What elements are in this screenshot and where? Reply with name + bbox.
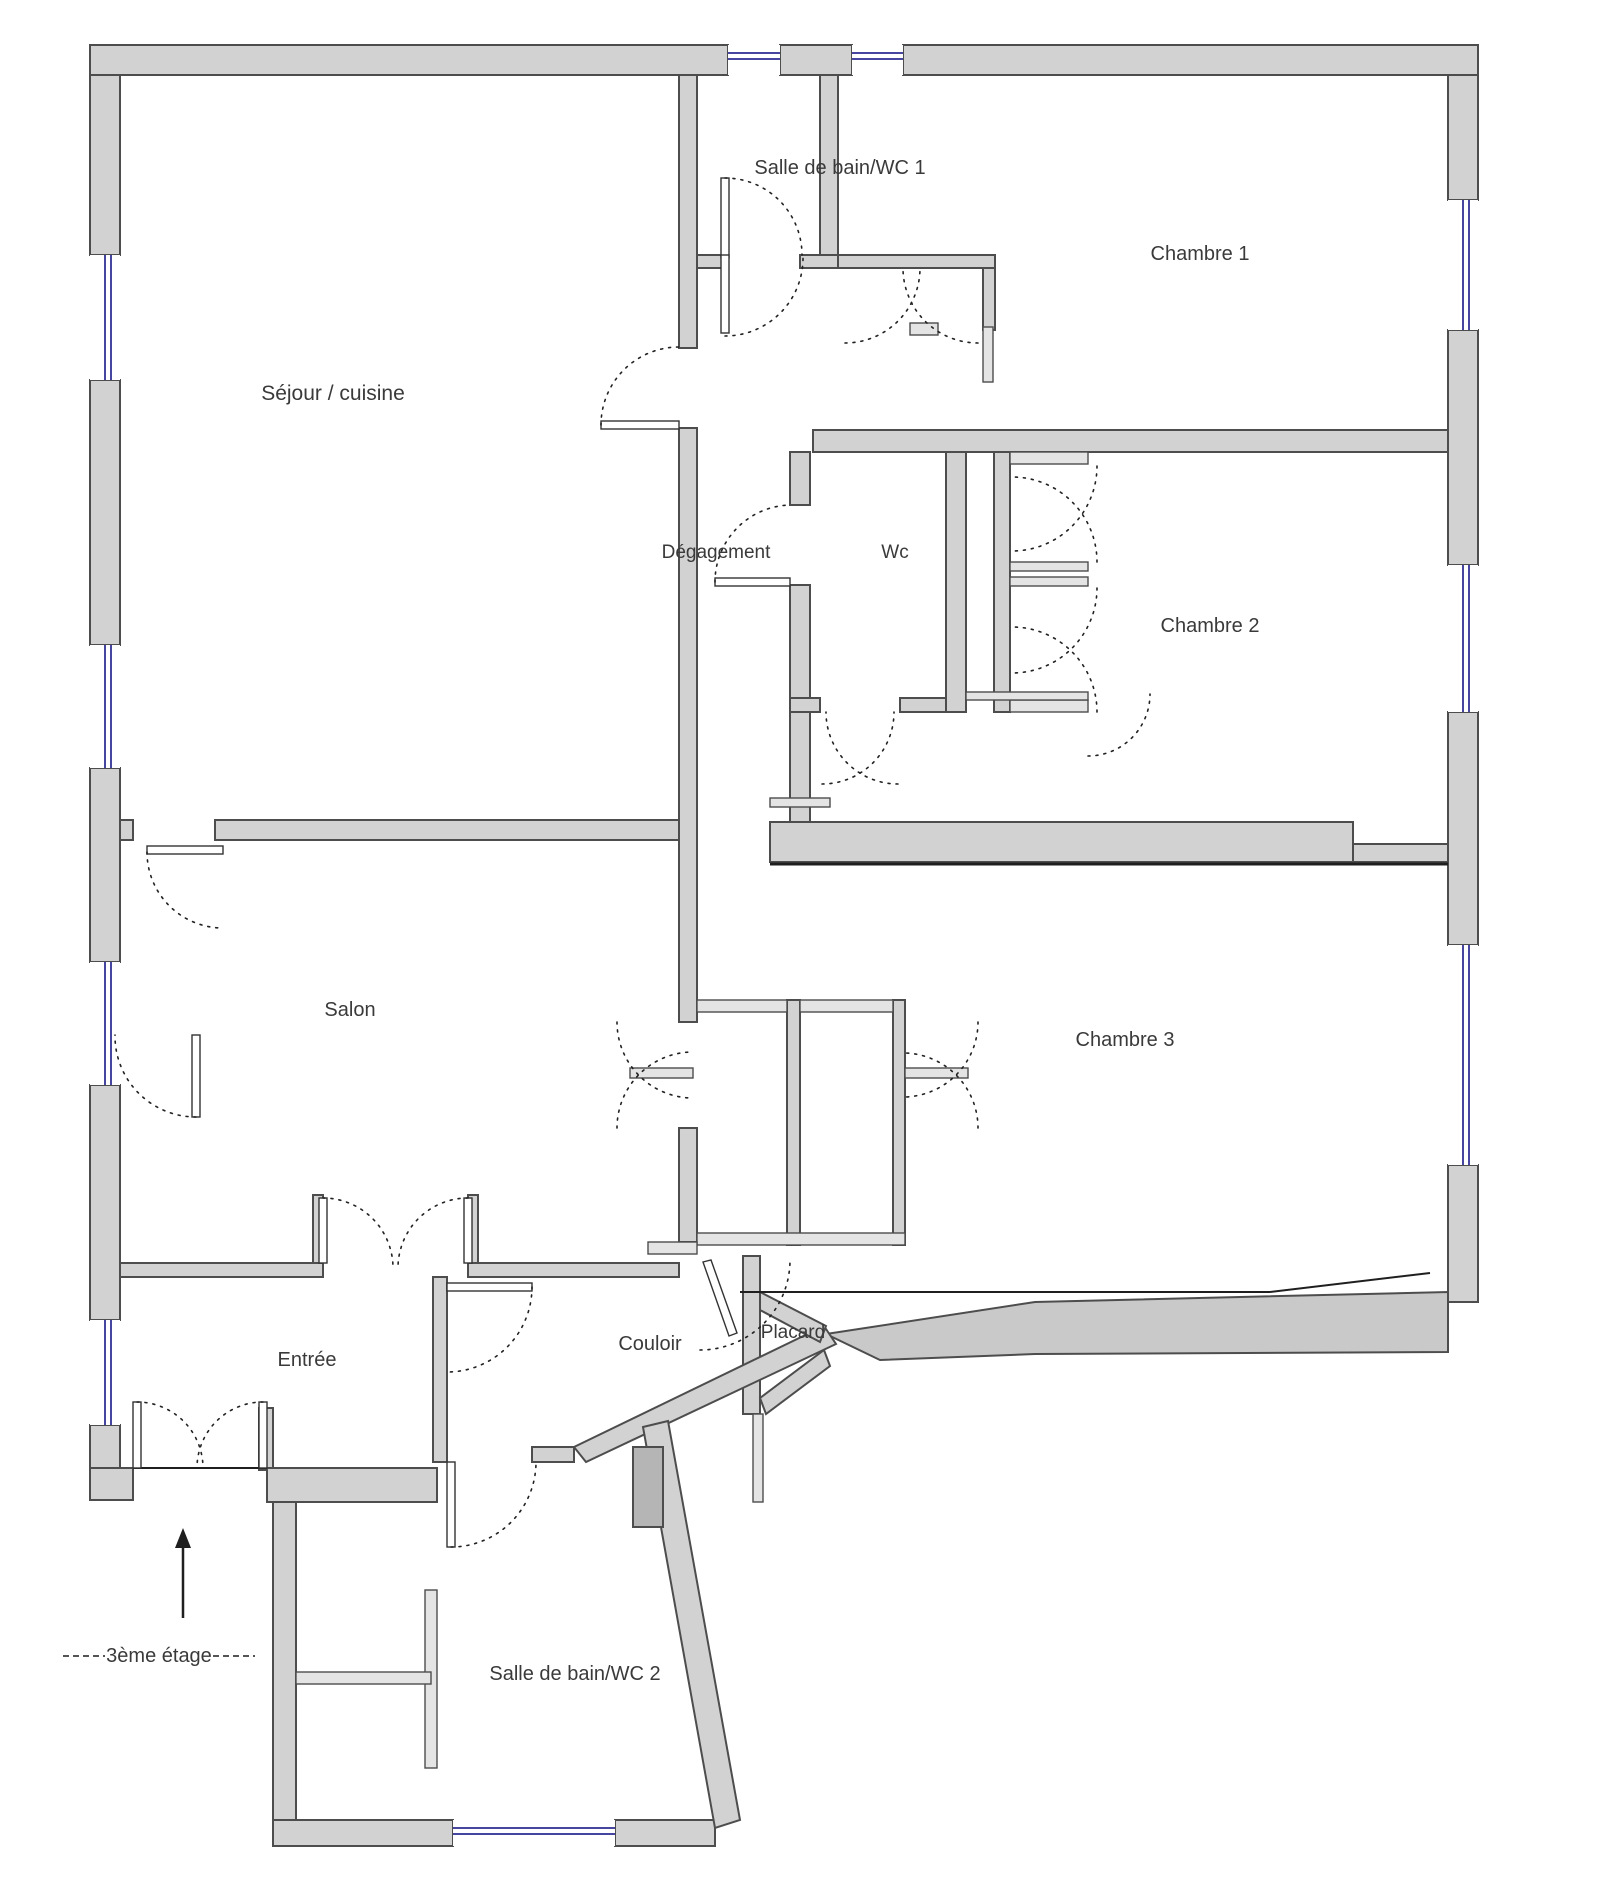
wall (267, 1468, 437, 1502)
wall (90, 1085, 120, 1320)
wall (433, 1277, 447, 1462)
partition-wall (1010, 700, 1088, 712)
partition-wall (296, 1672, 431, 1684)
wall (813, 430, 1448, 452)
wall (790, 452, 810, 505)
wall (994, 452, 1010, 712)
door-leaf (447, 1283, 532, 1291)
wall (743, 1256, 760, 1414)
door-swing-arc (398, 1198, 468, 1268)
wall (90, 768, 120, 962)
door-leaf-placard (703, 1260, 737, 1336)
door-leaf (464, 1198, 472, 1263)
door-swing-arc (323, 1198, 393, 1268)
door-swing-arc (845, 268, 920, 343)
room-label-couloir: Couloir (618, 1333, 682, 1355)
wall (679, 75, 697, 348)
partition-wall (1010, 562, 1088, 571)
room-label-degagement: Dégagement (662, 542, 772, 563)
wall (983, 268, 995, 330)
partition-wall (1010, 577, 1088, 586)
wall (90, 380, 120, 645)
room-label-placard: Placard (761, 1322, 825, 1343)
wall (903, 45, 1478, 75)
door-leaf (715, 578, 790, 586)
partition-wall (983, 327, 993, 382)
wall (679, 428, 697, 1022)
partition-wall (1010, 452, 1088, 464)
wall (770, 822, 1353, 862)
room-label-wc: Wc (881, 542, 908, 563)
wall (215, 820, 679, 840)
door-swing-arc (725, 258, 803, 336)
wall (780, 45, 852, 75)
wall-edge-line (1270, 1273, 1430, 1292)
partition-wall (966, 692, 1088, 700)
partition-wall (697, 1000, 787, 1012)
door-swing-arc (147, 852, 223, 928)
door-swing-arc (822, 712, 894, 784)
stair-arrow-head-icon (175, 1528, 191, 1548)
door-swing-arc (451, 1462, 536, 1547)
door-leaf (447, 1462, 455, 1547)
door-swing-arc (725, 178, 802, 255)
wall (120, 1263, 323, 1277)
door-swing-arc (447, 1287, 532, 1372)
polygons-layer (574, 1292, 1448, 1828)
door-leaf (192, 1035, 200, 1117)
wall (468, 1263, 679, 1277)
door-swing-arc (137, 1402, 203, 1468)
wall (120, 820, 133, 840)
room-label-salon: Salon (324, 999, 375, 1021)
wall (1448, 712, 1478, 945)
door-swing-arc (601, 347, 679, 425)
partition-wall (770, 798, 830, 807)
room-label-chambre-3: Chambre 3 (1076, 1029, 1175, 1051)
door-leaf (147, 846, 223, 854)
door-swing-arc (197, 1402, 263, 1468)
wall (800, 255, 838, 268)
partition-wall (753, 1414, 763, 1502)
wall (273, 1820, 453, 1846)
floor-note-layer: 3ème étage (63, 1528, 255, 1667)
wall (679, 1128, 697, 1242)
wall (790, 698, 820, 712)
wall (946, 452, 966, 712)
door-leaf (319, 1198, 327, 1263)
room-label-salle-de-bain-wc-2: Salle de bain/WC 2 (489, 1663, 660, 1685)
partition-wall (630, 1068, 693, 1078)
walls-layer (90, 45, 1478, 1846)
door-swing-arc (1012, 588, 1097, 673)
floor-plan-page: Séjour / cuisineSalle de bain/WC 1Chambr… (0, 0, 1600, 1886)
door-leaf (259, 1402, 267, 1468)
room-label-chambre-1: Chambre 1 (1151, 243, 1250, 265)
door-leaf (133, 1402, 141, 1468)
door-swing-arc (903, 1022, 978, 1097)
wall (838, 255, 995, 268)
wall (90, 1468, 133, 1500)
partition-wall (697, 1233, 905, 1245)
wall (615, 1820, 715, 1846)
wall (1448, 1165, 1478, 1302)
partition-wall (800, 1000, 893, 1012)
partition-wall (910, 323, 938, 335)
duct-shaft (633, 1447, 663, 1527)
wall (90, 75, 120, 255)
door-swing-arc (617, 1052, 693, 1128)
wall (273, 1502, 296, 1832)
door-leaf (721, 178, 729, 258)
wall (1353, 844, 1448, 862)
door-leaf (601, 421, 679, 429)
wall (1448, 330, 1478, 565)
diagonal-wall-upper (574, 1326, 836, 1462)
room-label-sejour-cuisine: Séjour / cuisine (261, 382, 405, 405)
wall (90, 45, 728, 75)
room-label-chambre-2: Chambre 2 (1161, 615, 1260, 637)
room-label-entree: Entrée (278, 1349, 337, 1371)
door-swing-arc (903, 1053, 978, 1128)
room-label-salle-de-bain-wc-1: Salle de bain/WC 1 (754, 157, 925, 179)
floor-note-label: 3ème étage (106, 1645, 212, 1667)
wall (697, 255, 723, 268)
wall (1448, 75, 1478, 200)
windows-layer (90, 45, 1478, 1846)
door-swing-arc (617, 1022, 693, 1098)
stair-landing (826, 1292, 1448, 1360)
floor-plan-svg: Séjour / cuisineSalle de bain/WC 1Chambr… (0, 0, 1600, 1886)
wall (787, 1000, 800, 1245)
wall (532, 1447, 574, 1462)
door-swing-arc (826, 712, 898, 784)
door-leaf (721, 255, 729, 333)
partition-wall (648, 1242, 697, 1254)
wall (893, 1000, 905, 1245)
door-swing-arc (115, 1035, 196, 1117)
